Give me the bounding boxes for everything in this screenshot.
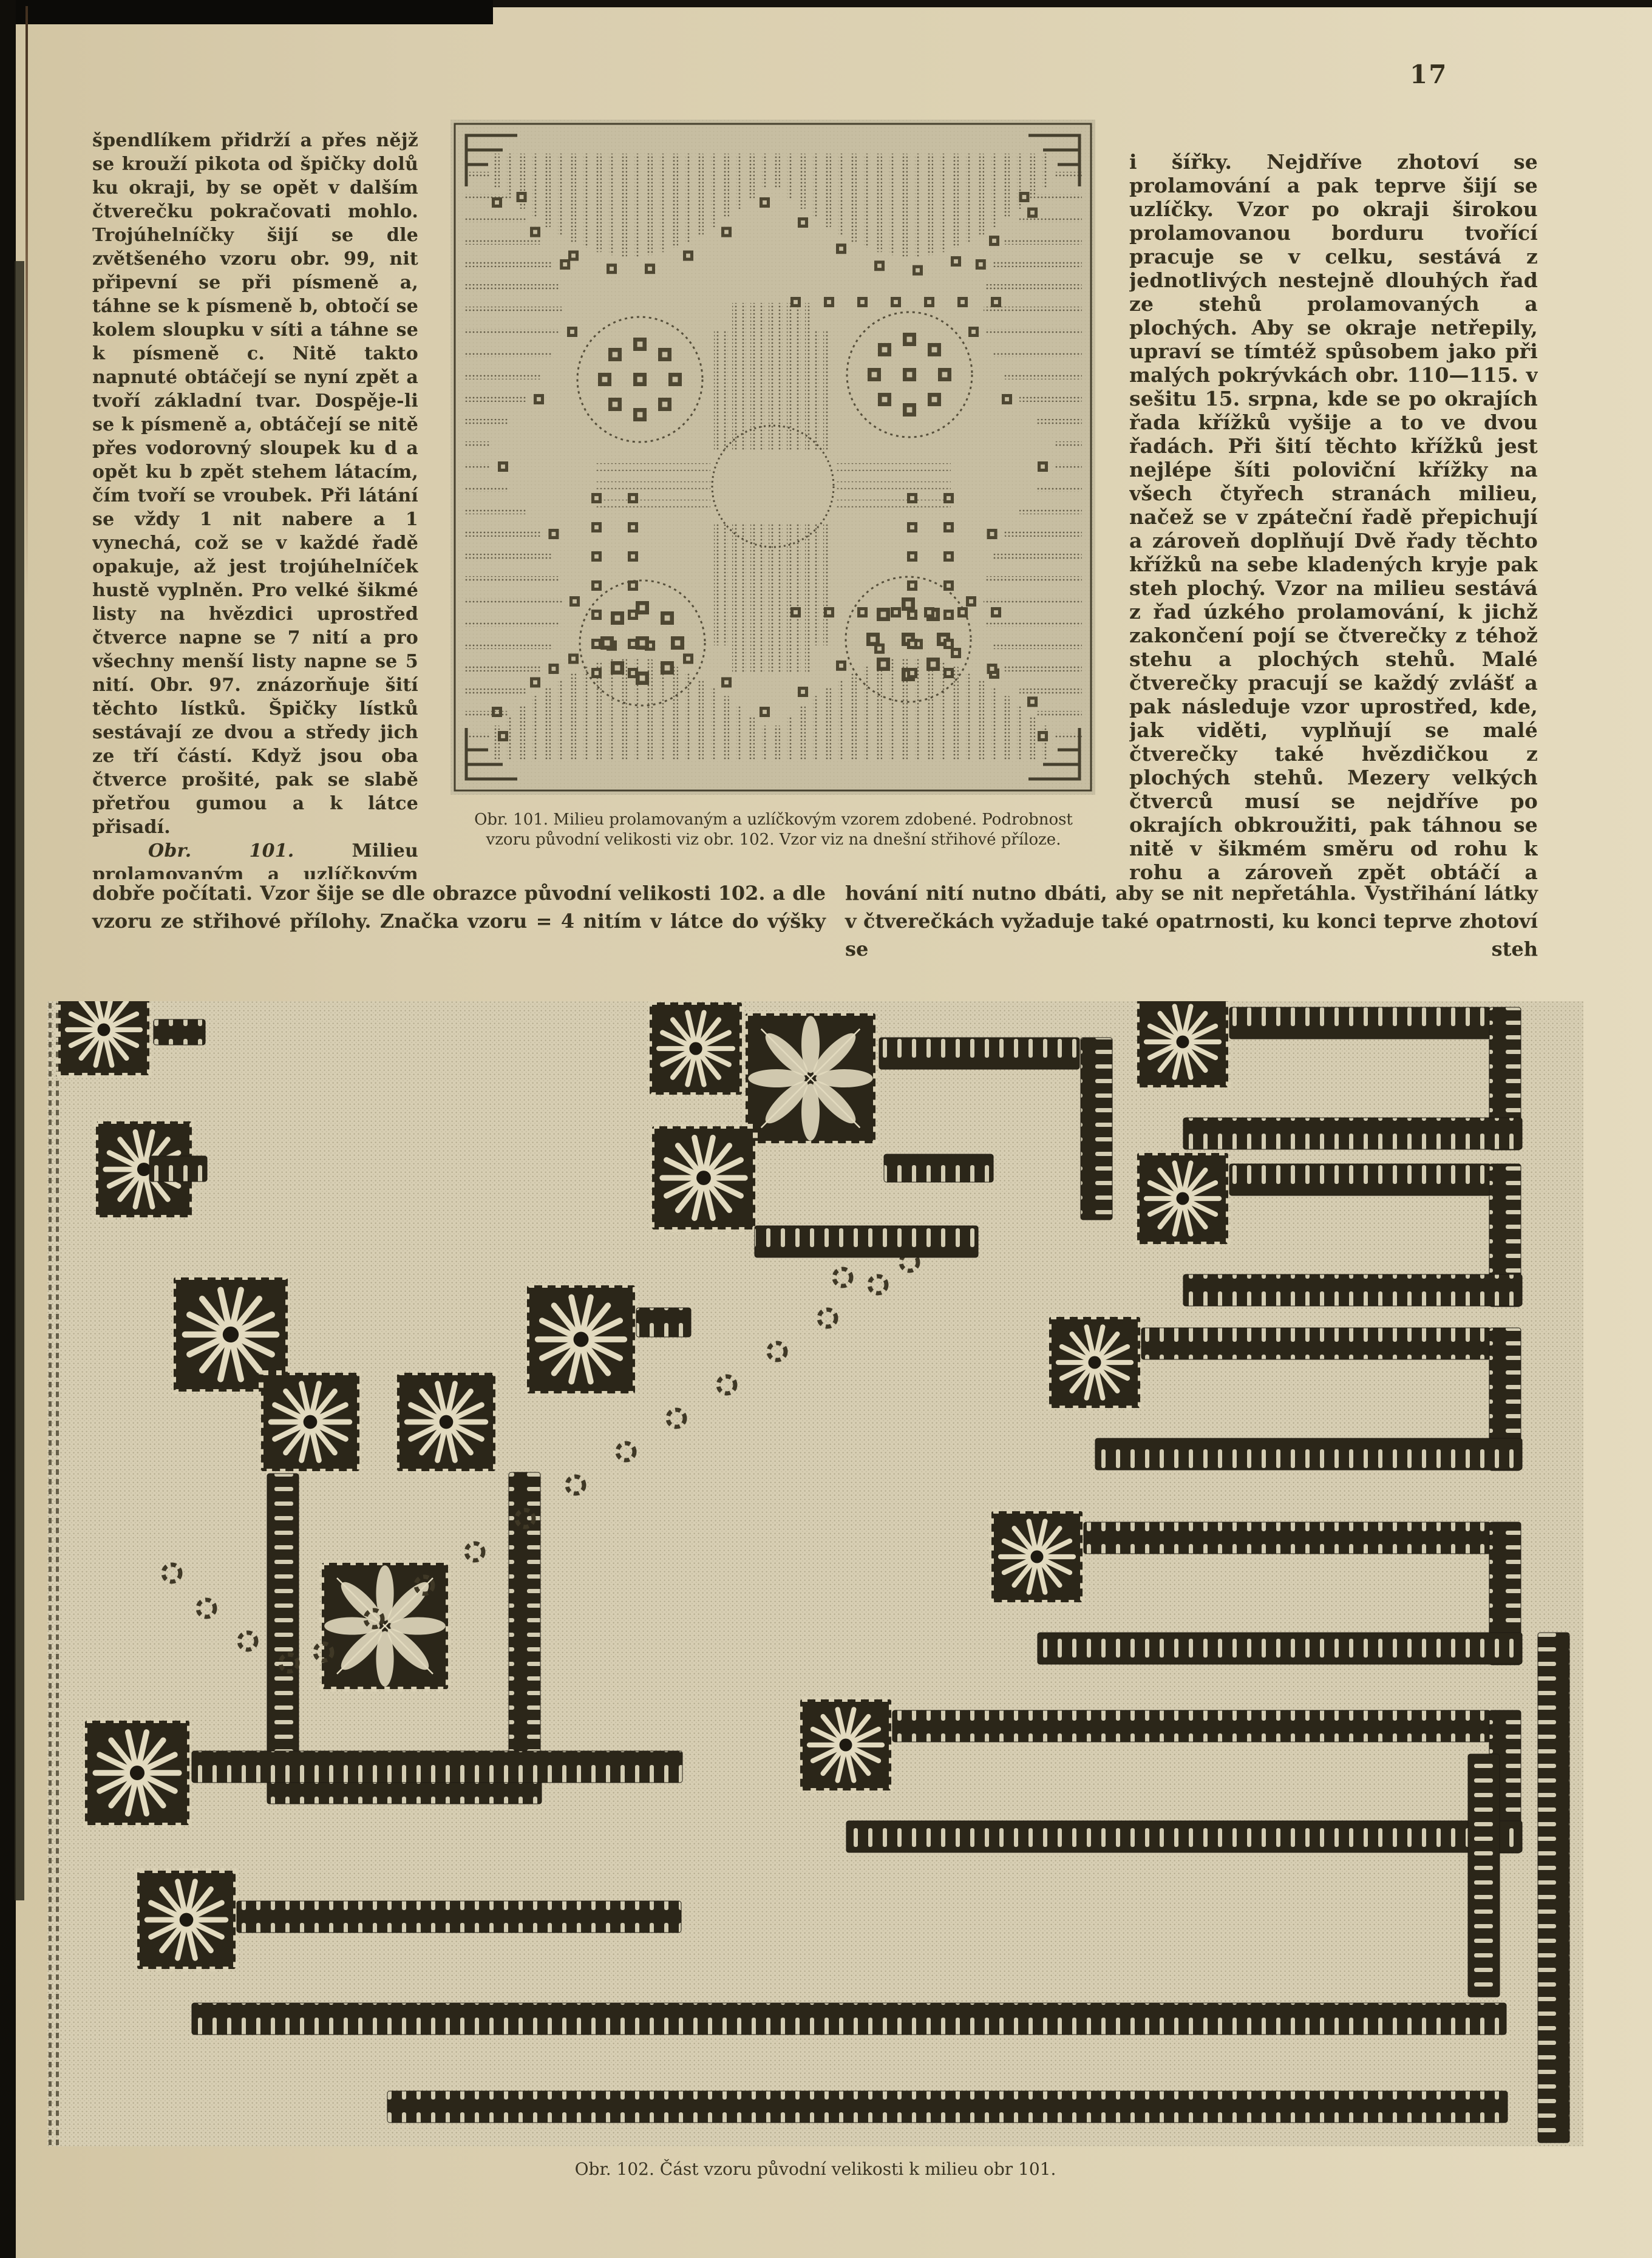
scan-edge-top-left	[0, 0, 493, 24]
milieu-pattern-drawing	[450, 120, 1095, 795]
milieu-pattern-figure	[450, 120, 1095, 795]
paragraph-obr-101: Obr. 101. Milieu prolamovaným a uzlíčkov…	[92, 839, 418, 879]
text-column-right: i šířky. Nejdříve zhotoví se prolamování…	[1129, 150, 1538, 885]
scan-edge-fold-line	[25, 6, 28, 601]
scan-edge-left	[0, 0, 16, 2258]
paragraph-continuation: špendlíkem přidrží a přes nějž se krouží…	[92, 129, 418, 839]
embroidery-photo	[47, 1001, 1583, 2146]
wide-line-left: dobře počítati. Vzor šije se dle obrazce…	[92, 879, 826, 935]
embroidery-photo-figure	[47, 1001, 1583, 2146]
text-column-left: špendlíkem přidrží a přes nějž se krouží…	[92, 129, 418, 879]
scanned-magazine-page: { "page": { "number": "17" }, "colors": …	[0, 0, 1652, 2258]
wide-line-right: hování nití nutno dbáti, aby se nit nepř…	[845, 879, 1538, 963]
paragraph: i šířky. Nejdříve zhotoví se prolamování…	[1129, 150, 1538, 885]
page-number: 17	[1410, 60, 1447, 89]
scan-edge-shadow	[15, 261, 24, 1900]
paragraph-lead: Obr. 101.	[148, 840, 294, 862]
figure-102-caption: Obr. 102. Část vzoru původní velikosti k…	[47, 2159, 1583, 2179]
figure-101-caption: Obr. 101. Milieu prolamovaným a uzlíčkov…	[450, 810, 1096, 850]
